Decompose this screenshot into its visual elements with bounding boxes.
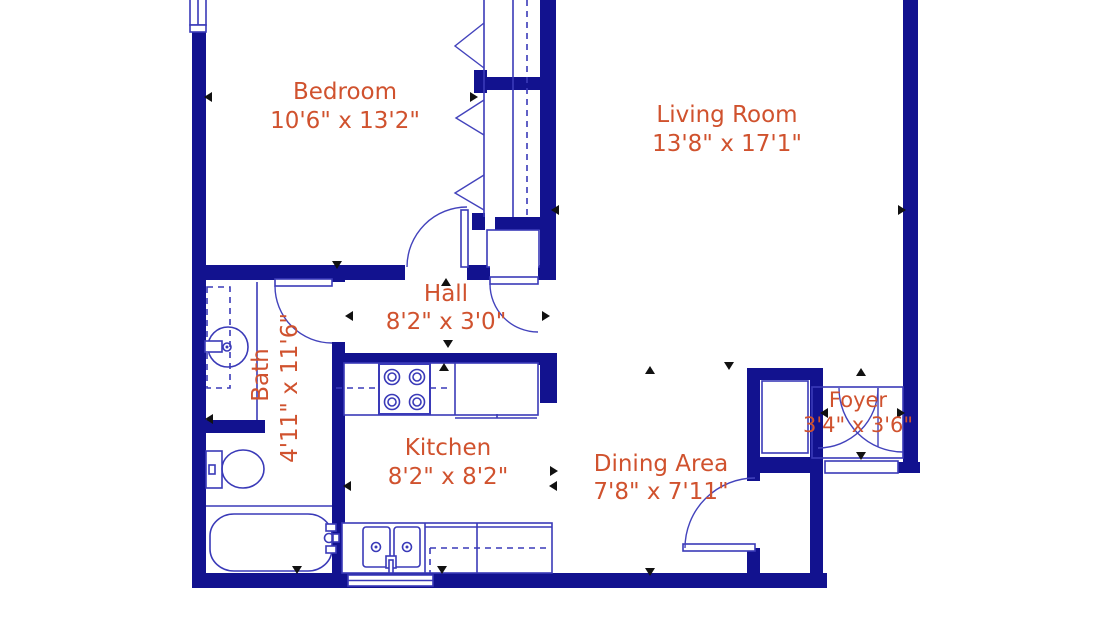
- wall-bath-stub: [192, 420, 265, 433]
- kitchen-dims: 8'2" x 8'2": [388, 464, 509, 490]
- bifold-door-icon: [455, 175, 484, 210]
- bedroom-door: [405, 207, 468, 281]
- bifold-door-icon: [455, 23, 484, 68]
- wall-dining-closet-west: [747, 548, 760, 588]
- bedroom-door-arc: [407, 207, 467, 267]
- bedroom-window-icon: [190, 0, 206, 32]
- wall-west: [192, 30, 206, 588]
- living-room-dims: 13'8" x 17'1": [652, 131, 802, 157]
- bedroom-label: Bedroom: [293, 79, 397, 105]
- linen-closet: [487, 230, 539, 267]
- hall-door-leaf: [490, 277, 538, 284]
- wall-closet-east: [540, 0, 556, 280]
- wall-east: [903, 0, 918, 462]
- bath-dims: 4'11" x 11'6": [277, 313, 303, 463]
- hall-dims: 8'2" x 3'0": [386, 309, 507, 335]
- wall-closet-bottom-divider: [495, 217, 540, 230]
- entry-threshold: [825, 461, 898, 473]
- toilet-icon: [206, 450, 264, 488]
- wall-closet-jamb-bottom: [472, 213, 485, 230]
- bedroom-dims: 10'6" x 13'2": [270, 108, 420, 134]
- wall-east-corner: [898, 462, 920, 473]
- stove-icon: [379, 364, 430, 414]
- wall-closet-jamb-top: [474, 70, 487, 93]
- floor-plan-canvas: Bedroom 10'6" x 13'2" Living Room 13'8" …: [0, 0, 1110, 623]
- wall-kitchen-east: [540, 353, 557, 403]
- bath-label: Bath: [248, 348, 274, 401]
- foyer-dims: 3'4" x 3'6": [803, 413, 913, 437]
- bathtub-icon: [210, 514, 339, 571]
- living-room-label: Living Room: [656, 102, 797, 128]
- kitchen-window-icon: [348, 575, 433, 586]
- bedroom-door-leaf: [461, 210, 468, 267]
- wall-south: [192, 573, 827, 588]
- vanity-sink-icon: [205, 327, 248, 367]
- bifold-door-icon: [456, 100, 484, 135]
- dining-area-label: Dining Area: [594, 451, 729, 477]
- wall-foyer-closet-south: [747, 457, 823, 473]
- dining-area-dims: 7'8" x 7'11": [593, 479, 728, 505]
- foyer-label: Foyer: [829, 388, 888, 412]
- dining-closet-door-leaf: [683, 544, 755, 551]
- wall-bedroom-south: [192, 265, 405, 280]
- hall-label: Hall: [424, 281, 468, 307]
- floor-plan: Bedroom 10'6" x 13'2" Living Room 13'8" …: [0, 0, 1110, 623]
- kitchen-label: Kitchen: [405, 435, 491, 461]
- foyer-closet-outline: [762, 381, 808, 453]
- bath-door-leaf: [275, 279, 332, 286]
